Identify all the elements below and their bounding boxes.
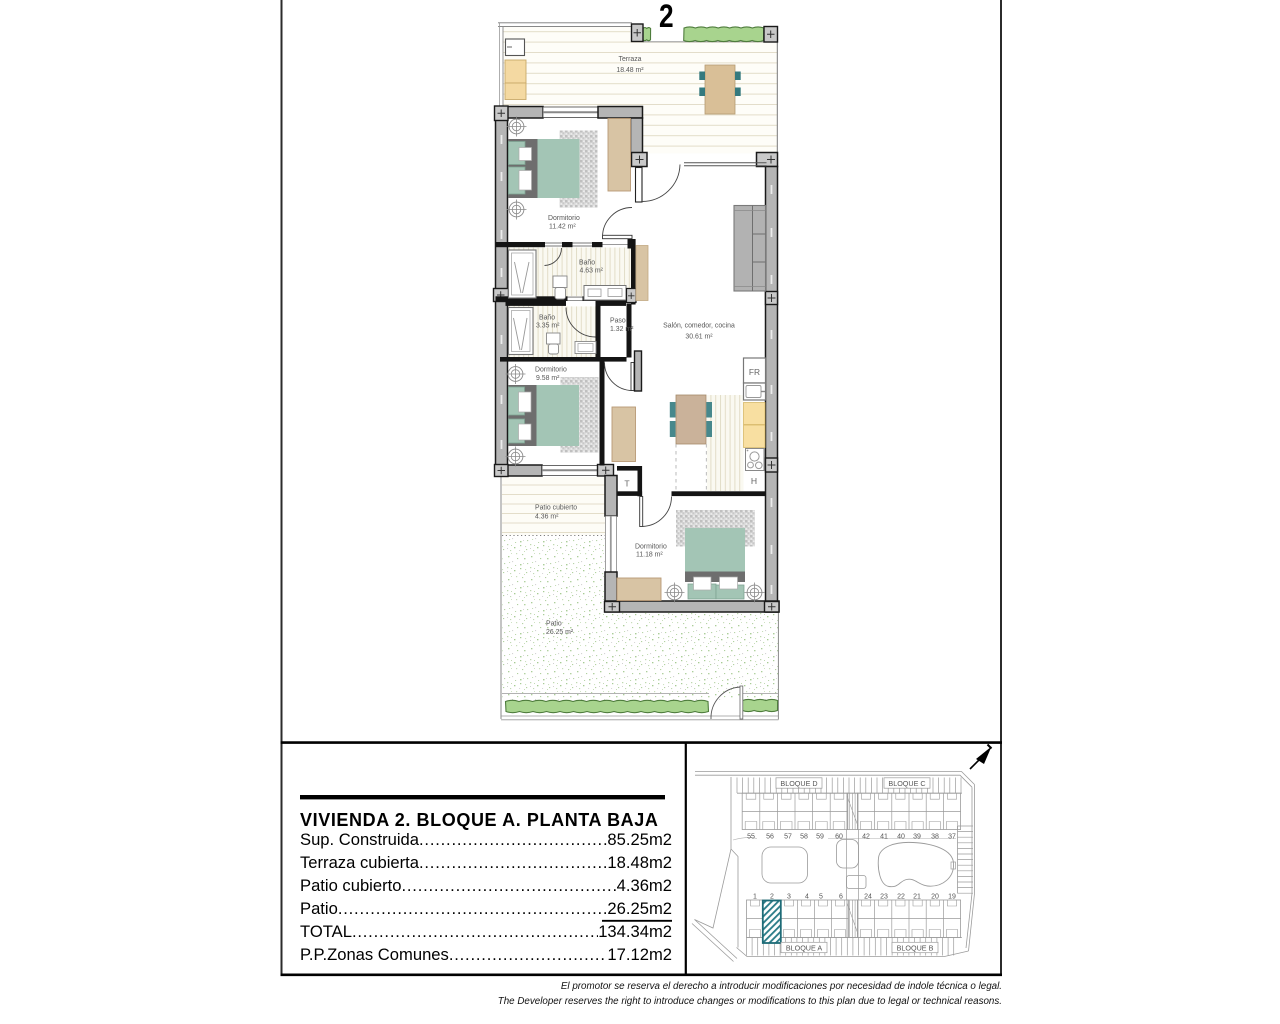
svg-text:30.61 m²: 30.61 m²: [685, 334, 713, 341]
svg-text:9.58 m²: 9.58 m²: [536, 375, 560, 382]
svg-text:1.32 m²: 1.32 m²: [610, 326, 634, 333]
svg-text:6: 6: [839, 894, 843, 901]
svg-text:T: T: [624, 479, 630, 489]
svg-text:2: 2: [770, 894, 774, 901]
svg-text:BLOQUE C: BLOQUE C: [888, 779, 925, 788]
svg-text:Terraza: Terraza: [619, 56, 642, 63]
svg-text:BLOQUE D: BLOQUE D: [780, 779, 817, 788]
svg-text:41: 41: [880, 834, 888, 841]
svg-text:38: 38: [931, 834, 939, 841]
svg-text:11.42 m²: 11.42 m²: [549, 224, 576, 231]
svg-text:21: 21: [913, 894, 921, 901]
svg-text:26.25 m²: 26.25 m²: [546, 629, 574, 636]
svg-text:4.63 m²: 4.63 m²: [580, 268, 604, 275]
svg-text:58: 58: [800, 834, 808, 841]
svg-text:24: 24: [864, 894, 872, 901]
svg-text:4.36 m²: 4.36 m²: [535, 514, 559, 521]
svg-text:Patio: Patio: [546, 621, 562, 628]
svg-text:Dormitorio: Dormitorio: [548, 215, 580, 222]
svg-text:BLOQUE B: BLOQUE B: [897, 944, 934, 953]
svg-text:39: 39: [913, 834, 921, 841]
svg-text:19: 19: [948, 894, 956, 901]
svg-text:40: 40: [897, 834, 905, 841]
svg-text:56: 56: [766, 834, 774, 841]
svg-text:5: 5: [819, 894, 823, 901]
svg-text:4: 4: [805, 894, 809, 901]
svg-text:22: 22: [897, 894, 905, 901]
svg-text:18.48 m²: 18.48 m²: [616, 67, 644, 74]
svg-text:H: H: [751, 476, 757, 486]
svg-text:Baño: Baño: [579, 260, 595, 267]
svg-text:57: 57: [784, 834, 792, 841]
svg-text:42: 42: [862, 834, 870, 841]
svg-text:Salón, comedor, cocina: Salón, comedor, cocina: [663, 323, 735, 330]
svg-text:Dormitorio: Dormitorio: [535, 367, 567, 374]
svg-text:2: 2: [659, 0, 674, 35]
svg-text:55: 55: [747, 834, 755, 841]
svg-text:FR: FR: [749, 367, 760, 377]
svg-text:11.18 m²: 11.18 m²: [636, 552, 663, 559]
svg-text:1: 1: [753, 894, 757, 901]
svg-text:Dormitorio: Dormitorio: [635, 544, 667, 551]
svg-text:BLOQUE A: BLOQUE A: [786, 944, 823, 953]
svg-text:Patio cubierto: Patio cubierto: [535, 505, 577, 512]
svg-text:Baño: Baño: [539, 315, 555, 322]
svg-text:3.35 m²: 3.35 m²: [536, 323, 560, 330]
svg-text:Paso: Paso: [610, 318, 626, 325]
svg-text:23: 23: [880, 894, 888, 901]
svg-text:37: 37: [948, 834, 956, 841]
svg-text:60: 60: [835, 834, 843, 841]
svg-text:20: 20: [931, 894, 939, 901]
svg-text:59: 59: [816, 834, 824, 841]
svg-text:3: 3: [787, 894, 791, 901]
